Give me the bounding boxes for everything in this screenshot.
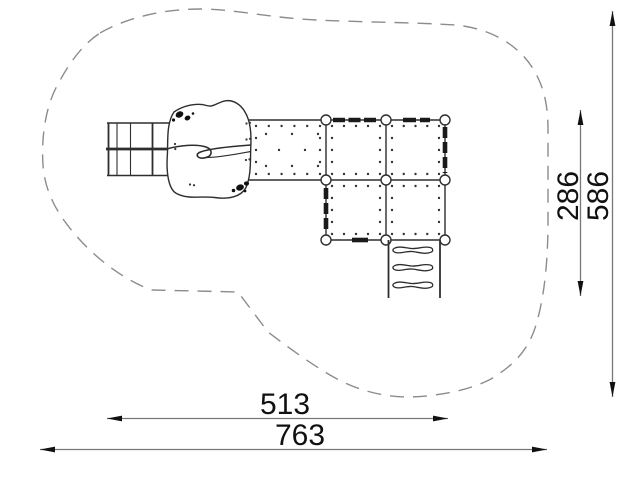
arrow-down-icon (610, 382, 616, 397)
dimension-height-outer: 586 (582, 11, 615, 397)
dim-width-outer-label: 763 (275, 419, 325, 452)
climbing-panel (167, 101, 251, 199)
arrow-up-icon (578, 110, 584, 125)
dim-height-inner-label: 286 (552, 171, 585, 221)
dimension-width-outer: 763 (40, 419, 547, 452)
climber-ramp (389, 240, 441, 298)
platform-decks (248, 120, 445, 240)
arrow-right-icon (532, 447, 547, 453)
safety-zone-boundary (43, 9, 548, 397)
dimension-height-inner: 286 (552, 110, 585, 296)
arrow-down-icon (578, 281, 584, 296)
dim-height-outer-label: 586 (582, 171, 615, 221)
plan-drawing: 513 763 286 586 (0, 0, 640, 480)
arrow-right-icon (433, 416, 448, 422)
arrow-left-icon (107, 416, 122, 422)
plan-canvas: 513 763 286 586 (0, 0, 640, 480)
dimension-width-inner: 513 (107, 388, 448, 421)
arrow-up-icon (610, 11, 616, 26)
arrow-left-icon (40, 447, 55, 453)
dim-width-inner-label: 513 (260, 388, 310, 421)
access-ladder (106, 123, 172, 176)
